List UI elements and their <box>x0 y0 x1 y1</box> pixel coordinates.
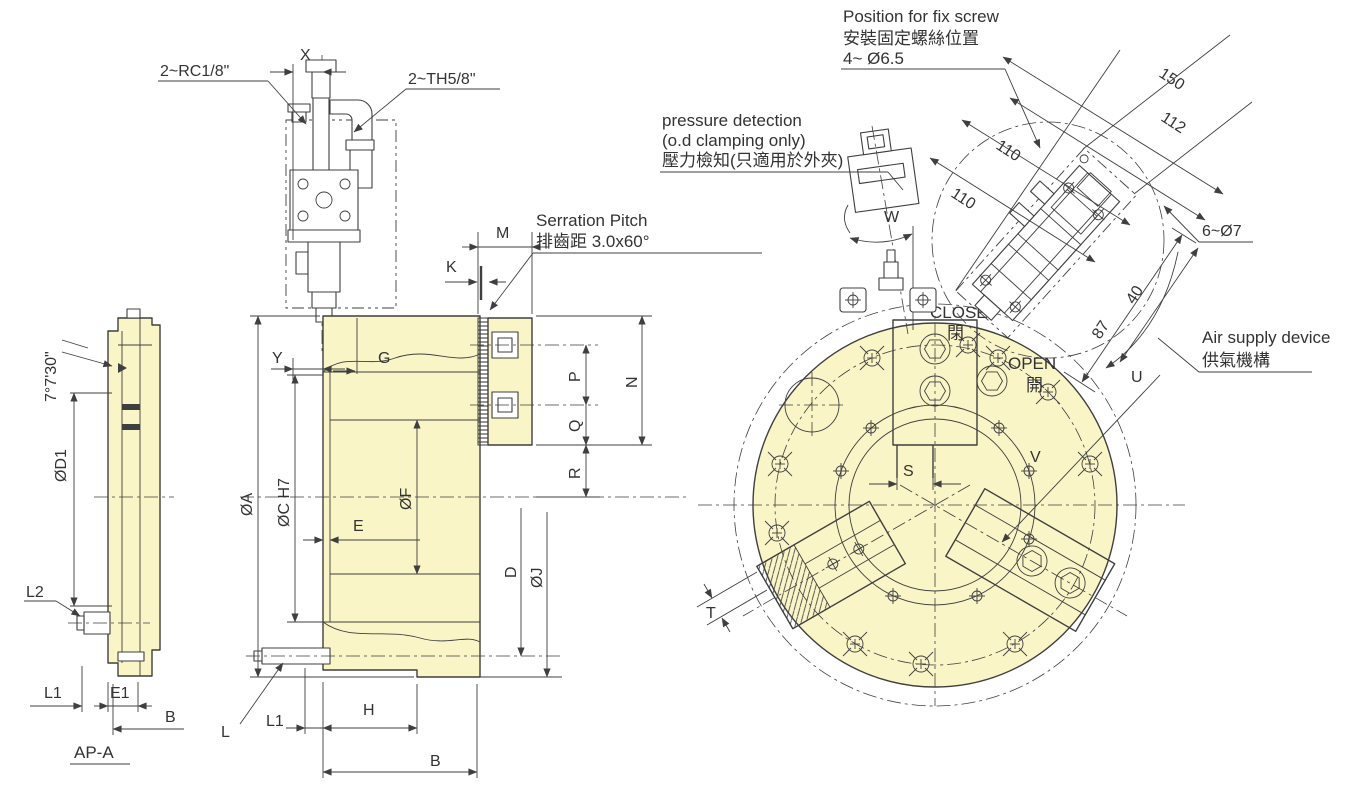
dim-label-N: N <box>624 376 641 388</box>
dim-label-Q: Q <box>567 420 584 432</box>
dim-label-L2: L2 <box>26 584 44 601</box>
dim-label-adapter-B: B <box>165 709 176 726</box>
note-fixscrew-2: 安裝固定螺絲位置 <box>843 29 979 48</box>
dim-label-angle: 7°7'30" <box>43 351 60 402</box>
air-supply-assembly-section <box>286 55 396 352</box>
serration-note-en: Serration Pitch <box>536 211 648 230</box>
drawing-page: ØD1 7°7'30" L2 L1 E1 B AP-A <box>0 0 1349 789</box>
dim-label-D: D <box>503 566 520 578</box>
serration-strip <box>478 318 488 445</box>
dim-label-P: P <box>567 371 584 382</box>
dim-label-G: G <box>378 350 390 367</box>
serration-note-zh: 排齒距 3.0x60° <box>536 232 650 251</box>
note-pressure-3: 壓力檢知(只適用於外夾) <box>662 151 843 170</box>
dim-label-112: 112 <box>1158 109 1189 137</box>
pressure-sensor: W <box>840 126 936 334</box>
note-airsupply-en: Air supply device <box>1202 328 1331 347</box>
dim-label-W: W <box>884 209 900 226</box>
dim-label-150: 150 <box>1156 65 1188 94</box>
note-fixscrew-3: 4~ Ø6.5 <box>843 49 904 68</box>
dim-label-40: 40 <box>1123 283 1147 307</box>
dim-label-S: S <box>903 463 914 480</box>
valve-block <box>290 170 358 230</box>
dim-label-adapter-L1: L1 <box>44 685 62 702</box>
dim-label-section-L1: L1 <box>266 713 284 730</box>
dim-label-E: E <box>353 518 364 535</box>
dim-label-V: V <box>1030 449 1041 466</box>
dim-label-phiJ: ØJ <box>529 568 546 588</box>
note-pressure-1: pressure detection <box>662 111 802 130</box>
dim-label-phiD1: ØD1 <box>53 449 70 482</box>
label-open-zh: 開 <box>1026 376 1043 395</box>
adapter-view: ØD1 7°7'30" L2 L1 E1 B AP-A <box>24 309 184 764</box>
note-pressure-2: (o.d clamping only) <box>662 131 806 150</box>
dim-label-K: K <box>446 259 457 276</box>
label-holes: 6~Ø7 <box>1202 223 1242 240</box>
port-label-th: 2~TH5/8" <box>408 71 476 88</box>
note-fixscrew-1: Position for fix screw <box>843 7 1000 26</box>
dim-label-U: U <box>1131 369 1143 386</box>
dim-label-Y: Y <box>272 350 283 367</box>
label-close-zh: 閉 <box>947 324 964 343</box>
port-label-rc: 2~RC1/8" <box>160 63 229 80</box>
dim-label-110a: 110 <box>993 137 1024 165</box>
dim-label-x: X <box>300 47 311 64</box>
note-airsupply-zh: 供氣機構 <box>1202 351 1270 370</box>
view-title-apa: AP-A <box>74 743 114 762</box>
dim-label-87: 87 <box>1089 318 1113 342</box>
dim-label-L: L <box>221 724 230 741</box>
label-open: OPEN <box>1008 354 1056 373</box>
dim-label-phiF: ØF <box>398 488 415 510</box>
dim-label-H: H <box>363 702 375 719</box>
dim-label-R: R <box>567 467 584 479</box>
dim-label-phiA: ØA <box>239 493 256 516</box>
technical-drawing-air-chuck: ØD1 7°7'30" L2 L1 E1 B AP-A <box>0 0 1349 789</box>
dim-label-phiC: ØC H7 <box>276 478 293 527</box>
dim-label-T: T <box>706 605 716 622</box>
front-view: S T CLOSE 閉 OPEN 開 <box>660 7 1331 706</box>
dim-label-section-B: B <box>430 753 441 770</box>
dim-label-M: M <box>496 225 509 242</box>
dim-label-110b: 110 <box>948 185 979 213</box>
